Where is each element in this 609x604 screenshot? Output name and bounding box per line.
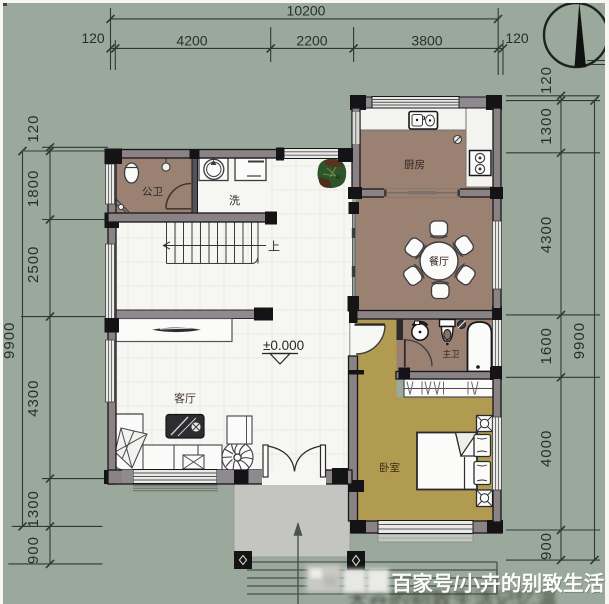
- svg-text:2500: 2500: [25, 246, 42, 283]
- svg-text:900: 900: [25, 536, 42, 564]
- svg-text:主卫: 主卫: [443, 349, 461, 359]
- svg-text:4000: 4000: [538, 430, 555, 467]
- svg-text:餐厅: 餐厅: [429, 255, 449, 268]
- svg-text:9900: 9900: [571, 322, 588, 359]
- svg-text:1600: 1600: [538, 327, 555, 364]
- svg-text:2200: 2200: [296, 33, 327, 49]
- svg-text:120: 120: [505, 30, 529, 46]
- svg-text:120: 120: [25, 115, 42, 143]
- svg-text:上: 上: [268, 240, 280, 254]
- svg-text:120: 120: [81, 30, 105, 46]
- svg-text:900: 900: [538, 532, 555, 560]
- svg-text:3800: 3800: [411, 33, 442, 49]
- svg-text:洗: 洗: [229, 194, 240, 207]
- svg-text:1300: 1300: [25, 490, 42, 527]
- svg-text:厨房: 厨房: [404, 158, 425, 171]
- svg-text:120: 120: [538, 66, 555, 94]
- svg-text:1800: 1800: [25, 170, 42, 207]
- svg-text:±0.000: ±0.000: [263, 338, 304, 353]
- svg-text:百家号/小卉的别致生活: 百家号/小卉的别致生活: [392, 572, 605, 596]
- svg-text:卧室: 卧室: [379, 461, 400, 474]
- svg-text:4200: 4200: [176, 33, 207, 49]
- svg-text:10200: 10200: [287, 3, 326, 19]
- svg-text:客厅: 客厅: [174, 391, 196, 405]
- svg-text:9900: 9900: [1, 322, 18, 359]
- svg-text:公卫: 公卫: [142, 186, 163, 198]
- svg-text:1300: 1300: [538, 107, 555, 144]
- svg-text:4300: 4300: [538, 216, 555, 253]
- svg-text:4300: 4300: [25, 380, 42, 417]
